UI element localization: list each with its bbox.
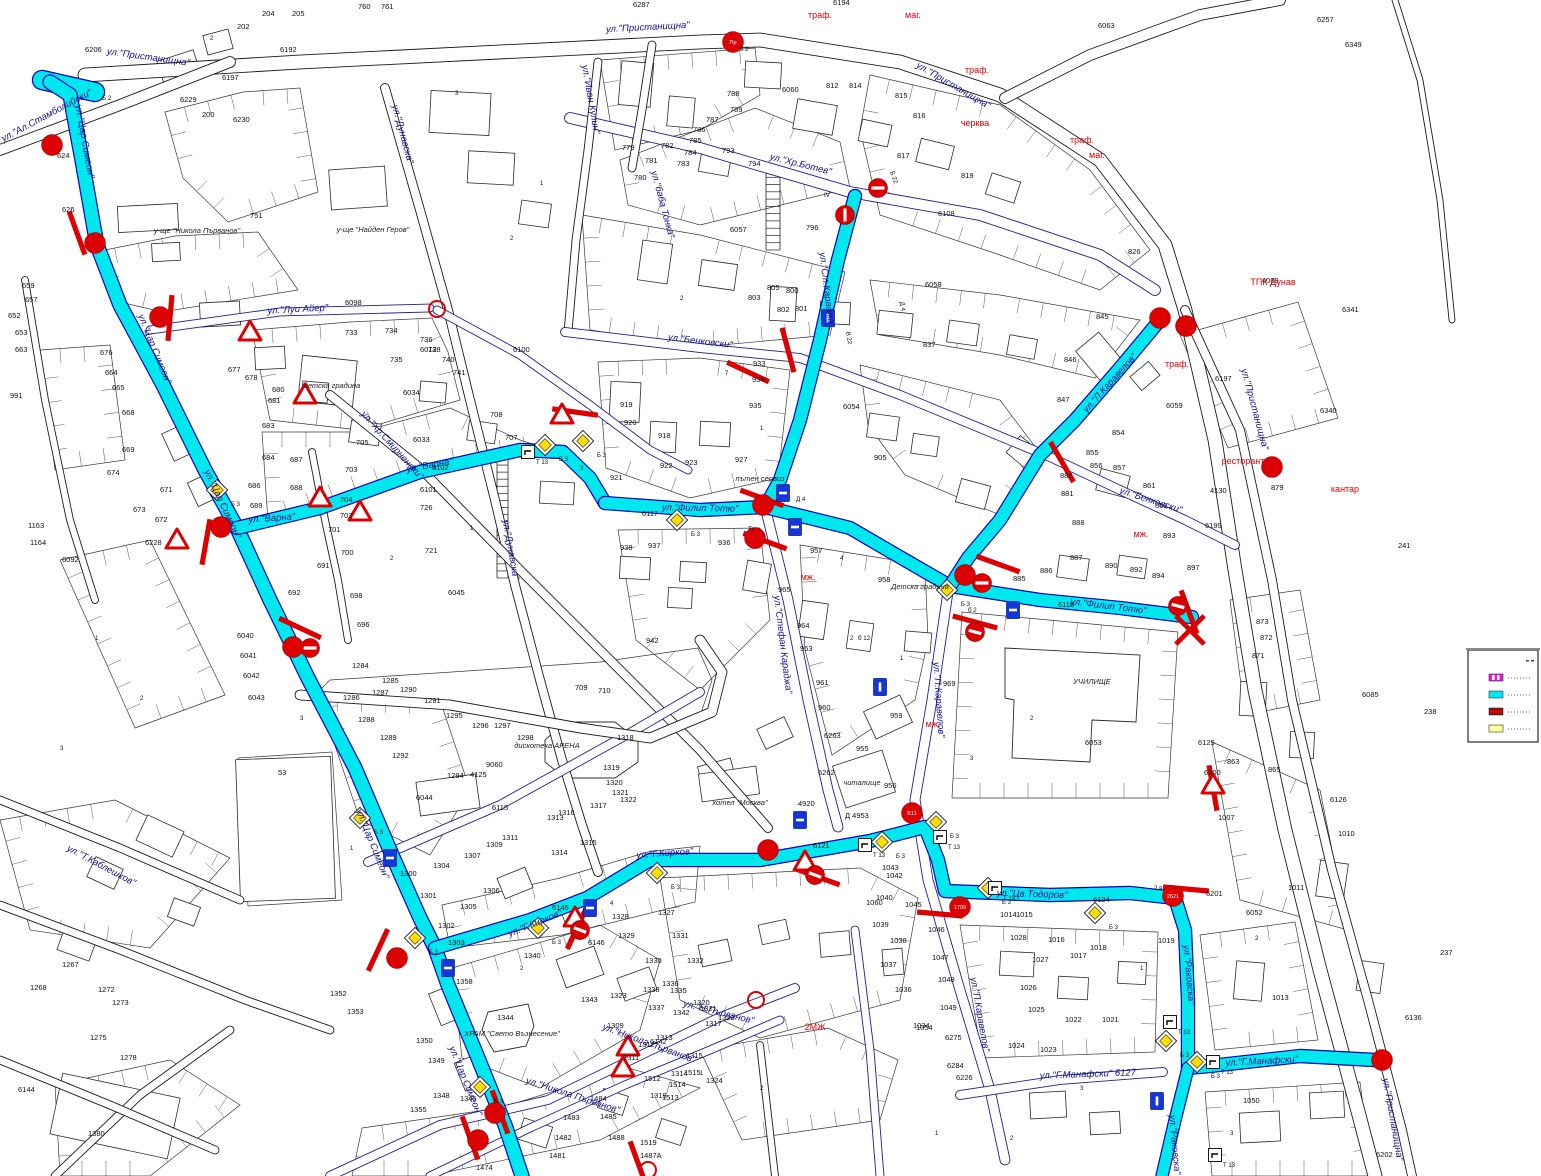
parcel-number: 1488	[608, 1133, 625, 1142]
parcel-number: 1349	[428, 1056, 445, 1065]
red-circle-icon	[85, 233, 106, 254]
parcel-number: 956	[884, 781, 897, 790]
parcel-number: 1038	[890, 936, 907, 945]
red-annotation: траф.	[1070, 135, 1094, 145]
parcel-number: 786	[693, 125, 706, 134]
parcel-number: 1016	[1048, 935, 1065, 944]
parcel-number: 53	[278, 768, 286, 777]
legend-chip	[1489, 725, 1503, 732]
building-footprint	[819, 931, 851, 958]
parcel-number: 1311	[502, 833, 518, 842]
building-footprint	[904, 631, 932, 653]
parcel-number: 6108	[938, 209, 955, 218]
sign-code: Т 13	[873, 853, 886, 859]
parcel-number: 1304	[433, 861, 450, 870]
parcel-number: 6012	[420, 345, 437, 354]
building-footprint	[152, 242, 181, 261]
parcel-number: 1514	[669, 1080, 686, 1089]
legend-title-dots	[1526, 660, 1529, 662]
parcel-number: 680	[272, 385, 285, 394]
parcel-number: 1026	[1020, 983, 1037, 992]
building-footprint	[1029, 1091, 1066, 1119]
building-footprint	[1057, 976, 1088, 1000]
red-circle-label: 1709	[954, 905, 966, 911]
map-viewport[interactable]: ПрБ1117092621Б 3Б 3Б 3Б 3Б 3Б 3Б 3Б 3Б 3…	[0, 0, 1541, 1176]
parcel-number: 861	[1143, 481, 1156, 490]
parcel-number: 920	[624, 418, 637, 427]
parcel-number: 1301	[420, 891, 437, 900]
parcel-number: 6124	[1093, 895, 1110, 904]
building-footprint	[1117, 961, 1146, 984]
parcel-number: 793	[722, 146, 735, 155]
sign-code: Б 3	[559, 457, 569, 463]
parcel-number: 6206	[85, 45, 102, 54]
red-node-marker	[485, 1103, 506, 1124]
building-footprint	[667, 96, 696, 128]
parcel-number: 1313	[547, 813, 564, 822]
parcel-number: 921	[610, 473, 623, 482]
parcel-number: 817	[897, 151, 910, 160]
parcel-number: 1380	[88, 1129, 105, 1138]
info-sign-box	[1164, 1016, 1177, 1029]
no-entry-sign-icon	[869, 179, 888, 198]
legend-chip-stripe	[1497, 675, 1500, 680]
oneway-sign-icon	[777, 485, 790, 502]
parcel-number: 1352	[330, 989, 347, 998]
building-footprint	[1006, 335, 1037, 360]
parcel-number: 9060	[486, 760, 503, 769]
parcel-number: 672	[155, 515, 168, 524]
red-annotation: маг.	[905, 10, 921, 20]
info-sign-box	[859, 839, 872, 852]
parcel-number: 734	[385, 326, 398, 335]
oneway-dash	[444, 967, 452, 970]
sign-code: Б 3	[671, 885, 681, 891]
legend-box-shadow	[1466, 648, 1540, 650]
parcel-number: 1017	[1070, 951, 1087, 960]
parcel-number: 958	[878, 575, 891, 584]
building-footprint	[793, 99, 838, 135]
parcel-number: 1042	[886, 871, 903, 880]
parcel-number: 934	[752, 375, 765, 384]
sign-code: Д 4	[796, 496, 806, 503]
parcel-number: 1318	[617, 733, 634, 742]
parcel-number: 961	[816, 678, 829, 687]
parcel-number: 1311	[623, 1053, 639, 1062]
parcel-number: 671	[160, 485, 173, 494]
oneway-sign-icon	[1007, 602, 1020, 619]
parcel-number: 6063	[1098, 21, 1115, 30]
sign-code: Б 3	[552, 940, 562, 946]
parcel-number: 897	[1187, 563, 1200, 572]
building-footprint	[911, 433, 940, 456]
parcel-number: 1021	[1102, 1015, 1119, 1024]
sign-code: Т 13	[1221, 1070, 1234, 1076]
parcel-number: 789	[730, 105, 743, 114]
parcel-number: 935	[749, 401, 762, 410]
parcel-number: 1043	[882, 863, 899, 872]
parcel-number: 918	[658, 431, 671, 440]
parcel-number: 704	[340, 495, 353, 504]
parcel-number: 6200	[1204, 768, 1221, 777]
parcel-number: 1300	[400, 869, 417, 878]
parcel-number: 626	[62, 205, 75, 214]
parcel-number: 698	[350, 591, 363, 600]
parcel-number: 740	[442, 355, 455, 364]
parcel-number: 6041	[240, 651, 257, 660]
parcel-number: 6057	[730, 225, 747, 234]
parcel-number: 865	[1268, 765, 1281, 774]
parcel-number: 653	[15, 328, 28, 337]
parcel-number: 1319	[603, 763, 620, 772]
parcel-number: 1322	[620, 795, 637, 804]
poi-label: пътен сервиз	[735, 474, 785, 483]
oneway-bar	[879, 683, 882, 692]
parcel-number: 205	[292, 9, 305, 18]
parcel-number: 879	[1271, 483, 1284, 492]
building-footprint	[877, 310, 913, 337]
parcel-number: 721	[425, 546, 438, 555]
parcel-number: 686	[248, 481, 261, 490]
parcel-number: 708	[490, 410, 503, 419]
sign-code: Б 3	[494, 1099, 504, 1105]
parcel-number: 761	[381, 2, 394, 11]
red-annotation: черква	[961, 118, 989, 128]
parcel-number: 919	[620, 400, 633, 409]
parcel-number: 1350	[416, 1036, 433, 1045]
info-sign-box	[522, 446, 535, 459]
parcel-number: 1336	[662, 979, 679, 988]
building-footprint	[619, 556, 650, 580]
parcel-number: 784	[684, 148, 697, 157]
oneway-sign-icon	[874, 679, 887, 696]
parcel-number: 782	[661, 141, 674, 150]
red-circle-label: Б11	[907, 811, 916, 817]
parcel-number: 6229	[180, 95, 197, 104]
parcel-number: 6201	[1206, 889, 1223, 898]
parcel-number: 819	[961, 171, 974, 180]
parcel-number: 202	[237, 22, 250, 31]
legend-chip-stripe	[1492, 675, 1495, 680]
parcel-number: 837	[923, 340, 936, 349]
parcel-number: 1329	[618, 931, 635, 940]
legend-chip	[1489, 674, 1503, 681]
parcel-number: 1328	[612, 912, 629, 921]
red-node-marker	[1150, 308, 1171, 329]
church-building	[482, 1004, 534, 1052]
parcel-number: 1278	[120, 1053, 137, 1062]
parcel-number: 847	[1057, 395, 1070, 404]
parcel-number: 1013	[1272, 993, 1289, 1002]
city-map-svg[interactable]: ПрБ1117092621Б 3Б 3Б 3Б 3Б 3Б 3Б 3Б 3Б 3…	[0, 0, 1541, 1176]
parcel-number: 1294	[447, 771, 464, 780]
parcel-number: 6058	[925, 280, 942, 289]
parcel-number: 955	[856, 744, 869, 753]
parcel-number: 688	[290, 483, 303, 492]
parcel-number: 1267	[62, 960, 79, 969]
parcel-number: 707	[505, 433, 518, 442]
parcel-number: 1018	[1090, 943, 1107, 952]
parcel-number: 872	[1260, 633, 1273, 642]
parcel-number: 6284	[947, 1061, 964, 1070]
parcel-number: 845	[1096, 312, 1109, 321]
parcel-number: 1286	[343, 693, 360, 702]
parcel-number: 964	[797, 621, 810, 630]
parcel-number: 6034	[403, 388, 420, 397]
red-circle-label: Пр	[729, 40, 736, 46]
parcel-number: 1320	[606, 778, 623, 787]
parcel-number: 959	[890, 711, 903, 720]
parcel-number: 1348	[433, 1091, 450, 1100]
parcel-number: 709	[575, 683, 588, 692]
parcel-number: 4125	[470, 770, 487, 779]
parcel-number: 736	[420, 335, 433, 344]
parcel-number: 794	[748, 159, 761, 168]
building-footprint	[467, 151, 515, 185]
parcel-number: 1481	[549, 1151, 566, 1160]
parcel-number: 6040	[237, 631, 254, 640]
parcel-number: 1036	[895, 985, 912, 994]
parcel-number: 1295	[446, 711, 463, 720]
parcel-number: 735	[390, 355, 403, 364]
sign-code: Б 2	[102, 95, 112, 102]
sign-code: Т 13	[1178, 1030, 1191, 1036]
parcel-number: 856	[1090, 461, 1103, 470]
parcel-number: 6100	[513, 345, 530, 354]
parcel-number: 6197	[222, 73, 239, 82]
parcel-number: 1285	[382, 676, 399, 685]
parcel-number: 1273	[112, 998, 129, 1007]
parcel-number: 674	[107, 468, 120, 477]
parcel-number: 6144	[18, 1085, 35, 1094]
building-footprint	[236, 756, 336, 901]
parcel-number: 4920	[798, 799, 815, 808]
poi-label: Детска градина	[890, 582, 949, 591]
parcel-number: 893	[1163, 531, 1176, 540]
parcel-number: 894	[1152, 571, 1165, 580]
parcel-number: 1303	[448, 938, 465, 947]
parcel-number: 1512	[644, 1074, 661, 1083]
parcel-number: 1039	[872, 920, 889, 929]
building-footprint	[798, 600, 829, 639]
parcel-number: 4130	[1210, 486, 1227, 495]
red-node-marker: 2621	[1163, 886, 1184, 907]
parcel-number: 6054	[843, 402, 860, 411]
oneway-sign-icon	[794, 812, 807, 829]
parcel-number: 700	[341, 548, 354, 557]
red-circle-icon	[387, 948, 408, 969]
sign-code: Б 3	[950, 834, 960, 840]
parcel-number: 1049	[940, 1003, 957, 1012]
sign-code: Б 3	[1211, 1074, 1221, 1080]
parcel-number: 1290	[400, 685, 417, 694]
oneway-sign-icon	[789, 519, 802, 536]
parcel-number: 701	[328, 525, 341, 534]
sign-code: б 12	[858, 635, 871, 642]
red-circle-icon	[1262, 457, 1283, 478]
red-annotation: траф.	[1165, 359, 1189, 369]
parcel-number: 787	[706, 115, 719, 124]
legend-chip-core	[1490, 710, 1502, 713]
parcel-number: 892	[1130, 565, 1143, 574]
parcel-number: 6085	[1362, 690, 1379, 699]
building-footprint	[1239, 1111, 1281, 1143]
parcel-number: 1007	[1218, 813, 1235, 822]
oneway-sign-icon	[442, 960, 455, 977]
no-entry-sign-icon	[836, 206, 855, 225]
parcel-number: 733	[345, 328, 358, 337]
parcel-number: 812	[826, 81, 839, 90]
parcel-number: 1340	[524, 951, 541, 960]
parcel-number: 927	[735, 455, 748, 464]
parcel-number: 6126	[1330, 795, 1347, 804]
parcel-number: 846	[1064, 355, 1077, 364]
parcel-number: 886	[1040, 566, 1053, 575]
building-footprint	[419, 381, 447, 403]
building-footprint	[743, 560, 772, 594]
parcel-number: 6226	[956, 1073, 973, 1082]
parcel-number: 684	[262, 453, 275, 462]
parcel-number: 710	[598, 686, 611, 695]
red-annotation: маг.	[1089, 150, 1105, 160]
red-node-marker	[283, 637, 304, 658]
parcel-number: 888	[1072, 518, 1085, 527]
oneway-dash	[586, 907, 594, 910]
sign-code: Б 3	[896, 854, 906, 860]
parcel-number: 6262	[818, 768, 835, 777]
parcel-number: 965	[778, 585, 791, 594]
red-annotation: кантар	[1331, 484, 1359, 494]
sign-code: Б 3	[1180, 1053, 1190, 1059]
parcel-number: 238	[1424, 707, 1437, 716]
parcel-number: 237	[1440, 948, 1453, 957]
parcel-number: 1014	[1000, 910, 1017, 919]
oneway-sign-icon	[584, 900, 597, 917]
parcel-number: 6033	[413, 435, 430, 444]
parcel-number: 1050	[1243, 1096, 1260, 1105]
oneway-dash	[1009, 609, 1017, 612]
parcel-number: 1284	[352, 661, 369, 670]
parcel-number: 805	[767, 283, 780, 292]
parcel-number: 1338	[643, 985, 660, 994]
building-footprint	[539, 481, 574, 505]
parcel-number: 1343	[581, 995, 598, 1004]
parcel-number: 677	[228, 365, 241, 374]
parcel-number: 1010	[1338, 829, 1355, 838]
parcel-number: 6045	[448, 588, 465, 597]
parcel-number: 6092	[62, 555, 79, 564]
parcel-number: 1331	[672, 931, 689, 940]
parcel-number: 1302	[438, 921, 455, 930]
parcel-number: 936	[718, 538, 731, 547]
parcel-number: 960	[818, 703, 831, 712]
red-node-marker	[387, 948, 408, 969]
oneway-dash	[796, 819, 804, 822]
red-node-marker: 1709	[950, 897, 971, 918]
parcel-number: 200	[202, 110, 215, 119]
parcel-number: 942	[646, 636, 659, 645]
poi-label: дискотека АРЕНА	[514, 741, 579, 750]
parcel-number: 1309	[486, 840, 503, 849]
legend-title-dots	[1531, 660, 1534, 662]
sign-code: Т 13	[1223, 1163, 1236, 1169]
street-name-label: ул."Филип Тотю"	[661, 502, 739, 514]
red-circle-icon	[283, 637, 304, 658]
parcel-number: 1314	[551, 848, 568, 857]
red-circle-label: 2621	[1167, 894, 1179, 900]
sign-code: Т 13	[948, 845, 961, 851]
red-annotation: 2МЖ	[805, 1022, 827, 1032]
red-circle-icon	[485, 1103, 506, 1124]
building-footprint	[744, 61, 781, 89]
parcel-number: 702	[340, 511, 353, 520]
parcel-number: 6052	[1246, 908, 1263, 917]
parcel-number: 1268	[30, 983, 47, 992]
parcel-number: 6341	[1342, 305, 1359, 314]
parcel-number: 788	[727, 89, 740, 98]
parcel-number: 816	[913, 111, 926, 120]
parcel-number: 668	[122, 408, 135, 417]
parcel-number: 659	[22, 281, 35, 290]
building-footprint	[699, 421, 730, 447]
red-annotation: ресторант	[1222, 456, 1265, 466]
parcel-number: 1291	[424, 696, 441, 705]
parcel-number: 678	[245, 373, 258, 382]
building-footprint	[1309, 1091, 1344, 1119]
parcel-number: 863	[1227, 757, 1240, 766]
parcel-number: 204	[262, 9, 275, 18]
parcel-number: 1487A	[640, 1151, 662, 1160]
parcel-number: 1332	[687, 956, 704, 965]
parcel-number: 241	[1398, 541, 1411, 550]
no-entry-bar	[872, 186, 885, 189]
red-circle-icon	[1176, 316, 1197, 337]
parcel-number: 6263	[824, 731, 841, 740]
parcel-number: 1355	[410, 1105, 427, 1114]
parcel-number: 1292	[392, 751, 409, 760]
parcel-number: 1048	[938, 975, 955, 984]
parcel-number: 1483	[563, 1113, 580, 1122]
parcel-number: 726	[420, 503, 433, 512]
parcel-number: 760	[358, 2, 371, 11]
parcel-number: 681	[268, 396, 281, 405]
parcel-number: 1315	[580, 838, 597, 847]
oneway-dash	[791, 526, 799, 529]
parcel-number: 1011	[1288, 883, 1304, 892]
parcel-number: 1054	[916, 1023, 933, 1032]
parcel-number: 6117	[642, 509, 658, 518]
parcel-number: 6230	[233, 115, 250, 124]
parcel-number: 814	[849, 81, 862, 90]
parcel-number: 1317	[705, 1019, 722, 1028]
sign-code: Б 3	[1109, 925, 1119, 931]
parcel-number: 6115	[492, 803, 508, 812]
parcel-number: 881	[1061, 489, 1074, 498]
oneway-bar	[1156, 1097, 1159, 1106]
parcel-number: 815	[895, 91, 908, 100]
parcel-number: 6101	[420, 485, 437, 494]
red-node-marker	[758, 840, 779, 861]
parcel-number: 1519	[640, 1138, 657, 1147]
poi-label: ХРАМ "Свето Възнесение"	[463, 1029, 560, 1038]
red-node-marker	[1262, 457, 1283, 478]
parcel-number: 1515	[684, 1068, 701, 1077]
red-circle-icon	[468, 1130, 489, 1151]
parcel-number: 1022	[1065, 1015, 1082, 1024]
parcel-number: 885	[1013, 574, 1026, 583]
parcel-number: 751	[250, 211, 263, 220]
parcel-number: 1289	[380, 733, 397, 742]
